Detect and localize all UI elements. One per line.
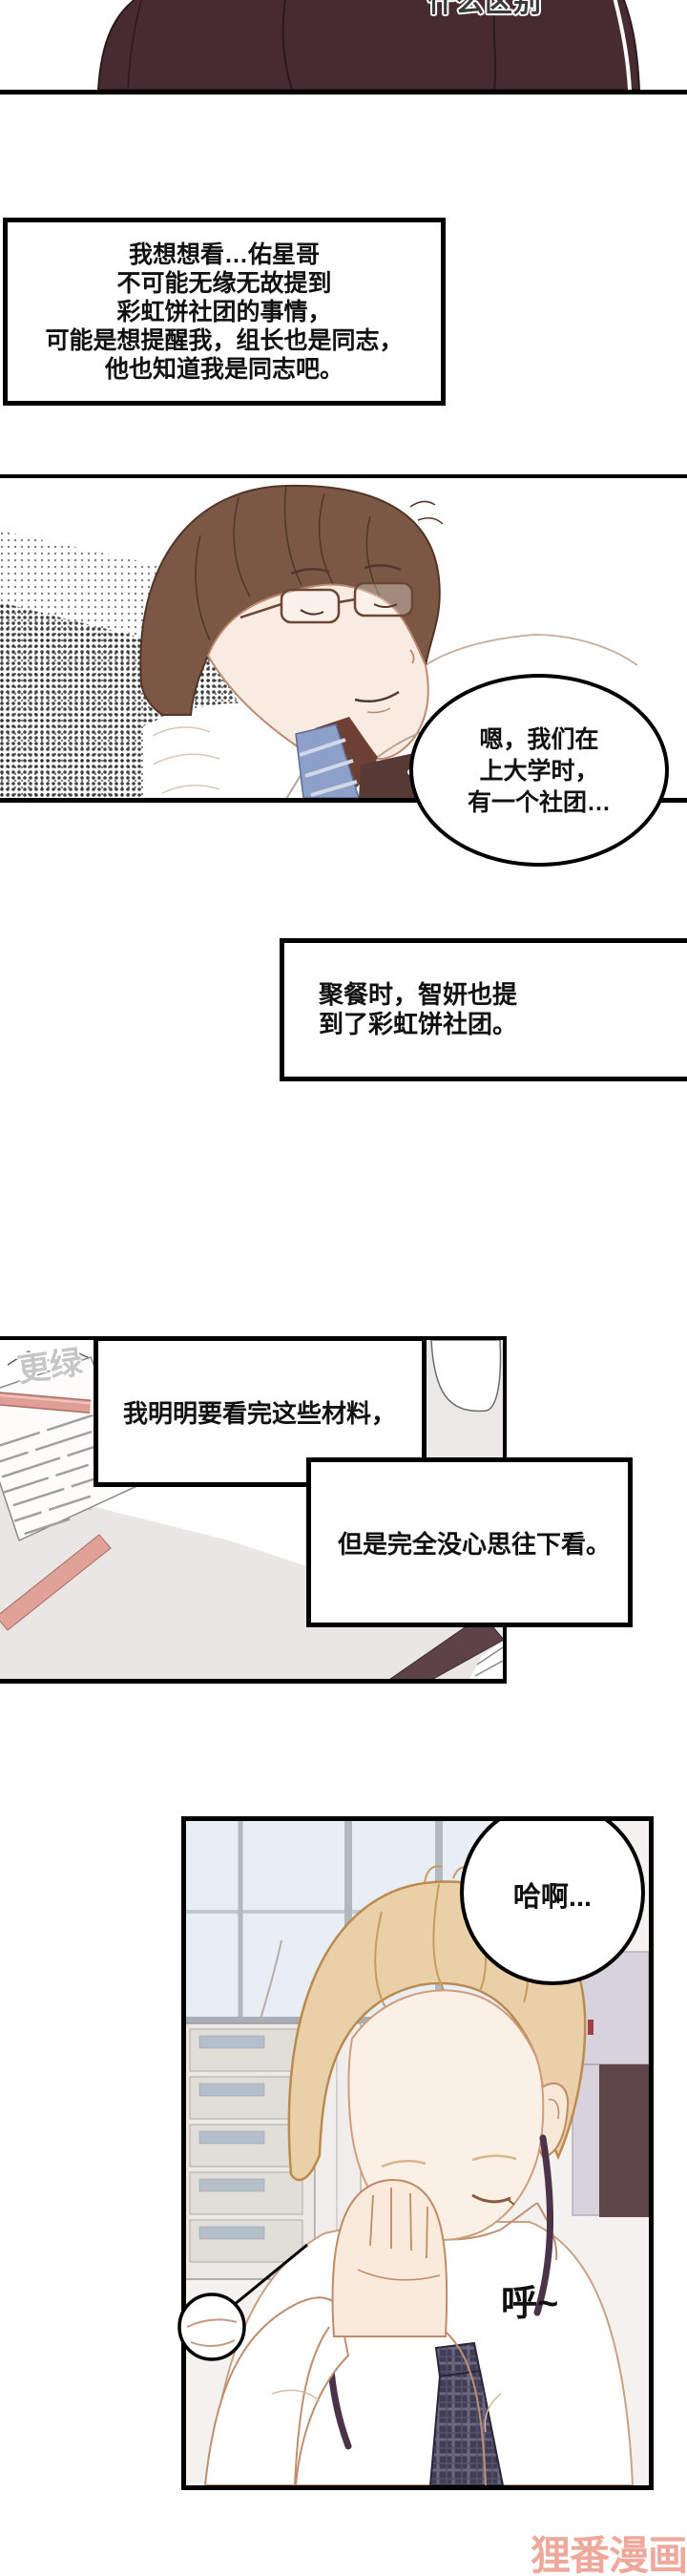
narration-line: 聚餐时，智妍也提 bbox=[319, 980, 687, 1010]
bubble-line: 有一个社团… bbox=[434, 787, 644, 819]
bubble-line: 嗯，我们在 bbox=[434, 724, 644, 756]
narration-box-1: 聚餐时，智妍也提 到了彩虹饼社团。 bbox=[280, 938, 687, 1081]
speech-bubble-2-text: 哈啊... bbox=[476, 1874, 629, 1915]
thought-line: 彩虹饼社团的事情， bbox=[8, 298, 441, 326]
magnifier-doodle-icon bbox=[143, 2224, 353, 2386]
sfx-top: 什么区别 bbox=[427, 0, 542, 20]
sigh-sfx: 呼~ bbox=[501, 2273, 558, 2326]
thought-line: 可能是想提醒我，组长也是同志， bbox=[8, 326, 441, 355]
thought-line: 我想想看…佑星哥 bbox=[8, 241, 441, 269]
narration-line: 但是完全没心思往下看。 bbox=[338, 1525, 628, 1560]
thought-box: 我想想看…佑星哥 不可能无缘无故提到 彩虹饼社团的事情， 可能是想提醒我，组长也… bbox=[3, 218, 446, 406]
corner-watermark: 更绿 bbox=[14, 1336, 85, 1391]
narration-box-3: 但是完全没心思往下看。 bbox=[306, 1457, 633, 1627]
narration-line: 我明明要看完这些材料， bbox=[123, 1394, 422, 1430]
panel-4: 哈啊... 呼~ bbox=[181, 1816, 654, 2490]
thought-line: 他也知道我是同志吧。 bbox=[8, 355, 441, 384]
jacket-artwork bbox=[0, 0, 687, 90]
panel-1 bbox=[0, 0, 687, 94]
comic-page: 什么区别 我想想看…佑星哥 不可能无缘无故提到 彩虹饼社团的事情， 可能是想提醒… bbox=[0, 0, 687, 2576]
narration-line: 到了彩虹饼社团。 bbox=[319, 1010, 687, 1039]
bubble-line: 上大学时， bbox=[434, 756, 644, 787]
site-watermark: 狸番漫画 bbox=[531, 2524, 687, 2576]
thought-line: 不可能无缘无故提到 bbox=[8, 269, 441, 298]
speech-bubble-1-text: 嗯，我们在 上大学时， 有一个社团… bbox=[434, 724, 644, 819]
